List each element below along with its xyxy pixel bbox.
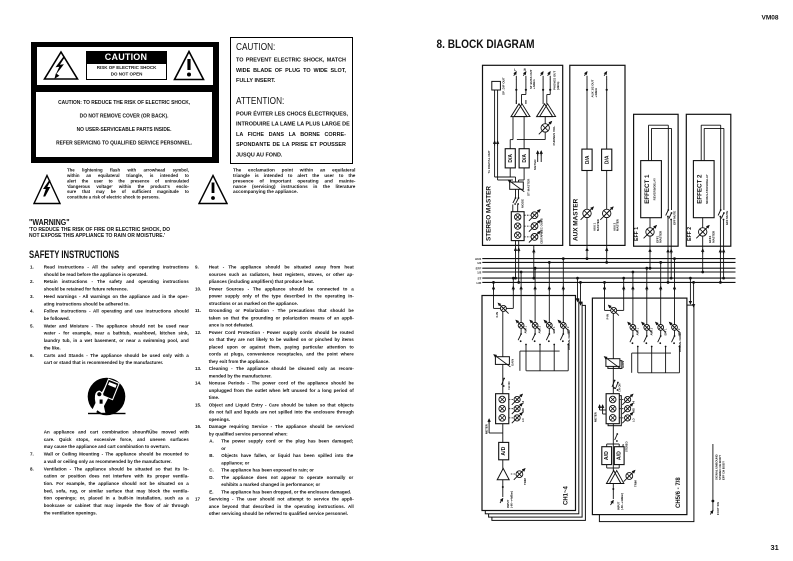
svg-text:A/D: A/D — [501, 446, 507, 455]
svg-text:CH5/6 - 7/8: CH5/6 - 7/8 — [676, 477, 682, 508]
svg-text:1/2: 1/2 — [477, 271, 482, 275]
svg-text:EFF MUTE: EFF MUTE — [673, 211, 677, 225]
svg-text:PAN/BAL FADER: PAN/BAL FADER — [568, 330, 571, 350]
svg-text:8. BLOCK DIAGRAM: 8. BLOCK DIAGRAM — [437, 37, 535, 51]
svg-text:CH ON: CH ON — [618, 384, 622, 392]
svg-text:AUX MASTER: AUX MASTER — [573, 198, 580, 241]
svg-text:GAIN: GAIN — [621, 361, 625, 368]
svg-text:TRIM: TRIM — [523, 477, 527, 485]
svg-text:L: L — [514, 68, 516, 72]
svg-text:EFF MUTE: EFF MUTE — [725, 211, 729, 225]
svg-text:To DIGITAL OUT: To DIGITAL OUT — [487, 150, 491, 173]
svg-text:PHONES VOL: PHONES VOL — [552, 126, 556, 146]
svg-text:L/R: L/R — [476, 281, 482, 285]
svg-text:AUX 2: AUX 2 — [539, 325, 542, 333]
svg-text:AUX 1: AUX 1 — [525, 325, 528, 333]
svg-text:HI: HI — [632, 401, 636, 404]
svg-text:CD/TAPE: CD/TAPE — [539, 232, 543, 244]
svg-text:(dBm): (dBm) — [556, 82, 560, 90]
svg-text:MODULATION/DELAY: MODULATION/DELAY — [705, 174, 709, 204]
svg-text:EFF 1: EFF 1 — [664, 328, 667, 335]
svg-text:MASTER: MASTER — [596, 219, 600, 231]
svg-text:CH1~4: CH1~4 — [564, 485, 570, 505]
svg-text:PAN/BAL FADER: PAN/BAL FADER — [679, 332, 682, 352]
svg-text:EFF CH BODY: EFF CH BODY — [722, 461, 726, 480]
svg-text:D/A: D/A — [508, 154, 514, 163]
svg-text:SP_DIF OUT: SP_DIF OUT — [502, 77, 506, 95]
svg-text:+4dBm: +4dBm — [594, 87, 598, 97]
svg-text:CH ON: CH ON — [507, 382, 511, 390]
svg-text:HI: HI — [521, 401, 525, 404]
svg-text:LO: LO — [632, 418, 636, 422]
svg-text:VM08: VM08 — [762, 15, 780, 22]
svg-text:EFF 2: EFF 2 — [687, 227, 693, 241]
svg-text:STEREO MASTER: STEREO MASTER — [486, 186, 493, 241]
svg-text:AUX 1: AUX 1 — [637, 327, 640, 335]
svg-text:EFFECT 1: EFFECT 1 — [644, 174, 651, 204]
svg-text:LO: LO — [521, 418, 525, 422]
svg-text:F-IN: F-IN — [495, 312, 499, 317]
svg-text:REVERB/DELAY: REVERB/DELAY — [652, 178, 656, 200]
svg-text:STEREO: STEREO — [624, 441, 628, 452]
svg-text:A/D: A/D — [604, 451, 610, 460]
svg-text:FOOT SW: FOOT SW — [716, 502, 720, 515]
svg-text:31: 31 — [771, 543, 779, 552]
svg-text:D/A: D/A — [605, 155, 611, 164]
svg-text:F-IN: F-IN — [605, 314, 609, 319]
svg-text:EFF 1: EFF 1 — [553, 326, 556, 333]
svg-text:EFFECT 2: EFFECT 2 — [697, 174, 704, 204]
svg-text:METER: METER — [484, 424, 488, 434]
svg-text:D/A: D/A — [522, 154, 528, 163]
svg-text:MID: MID — [632, 408, 636, 413]
svg-text:+4dBm: +4dBm — [532, 79, 536, 89]
svg-text:1/2: 1/2 — [477, 261, 482, 265]
svg-text:A/D: A/D — [617, 451, 623, 460]
svg-text:R: R — [524, 68, 527, 72]
svg-text:METER: METER — [533, 159, 537, 170]
svg-text:MASTER: MASTER — [616, 219, 620, 231]
svg-text:MASTER: MASTER — [659, 231, 663, 243]
svg-text:TRIM: TRIM — [633, 479, 637, 487]
svg-text:MODE: MODE — [520, 199, 524, 208]
svg-text:METER: METER — [594, 412, 598, 422]
svg-text:ST MASTER: ST MASTER — [527, 178, 531, 196]
svg-text:EFF 1: EFF 1 — [634, 227, 640, 241]
svg-text:AUX 2: AUX 2 — [650, 327, 653, 335]
svg-text:(-60~+4dBm): (-60~+4dBm) — [509, 491, 513, 508]
svg-text:MASTER: MASTER — [711, 231, 715, 243]
svg-text:GAIN: GAIN — [510, 359, 514, 366]
svg-text:(-60~+4dBm): (-60~+4dBm) — [620, 493, 624, 510]
svg-text:D/A: D/A — [585, 155, 591, 164]
svg-text:MID: MID — [521, 408, 525, 413]
